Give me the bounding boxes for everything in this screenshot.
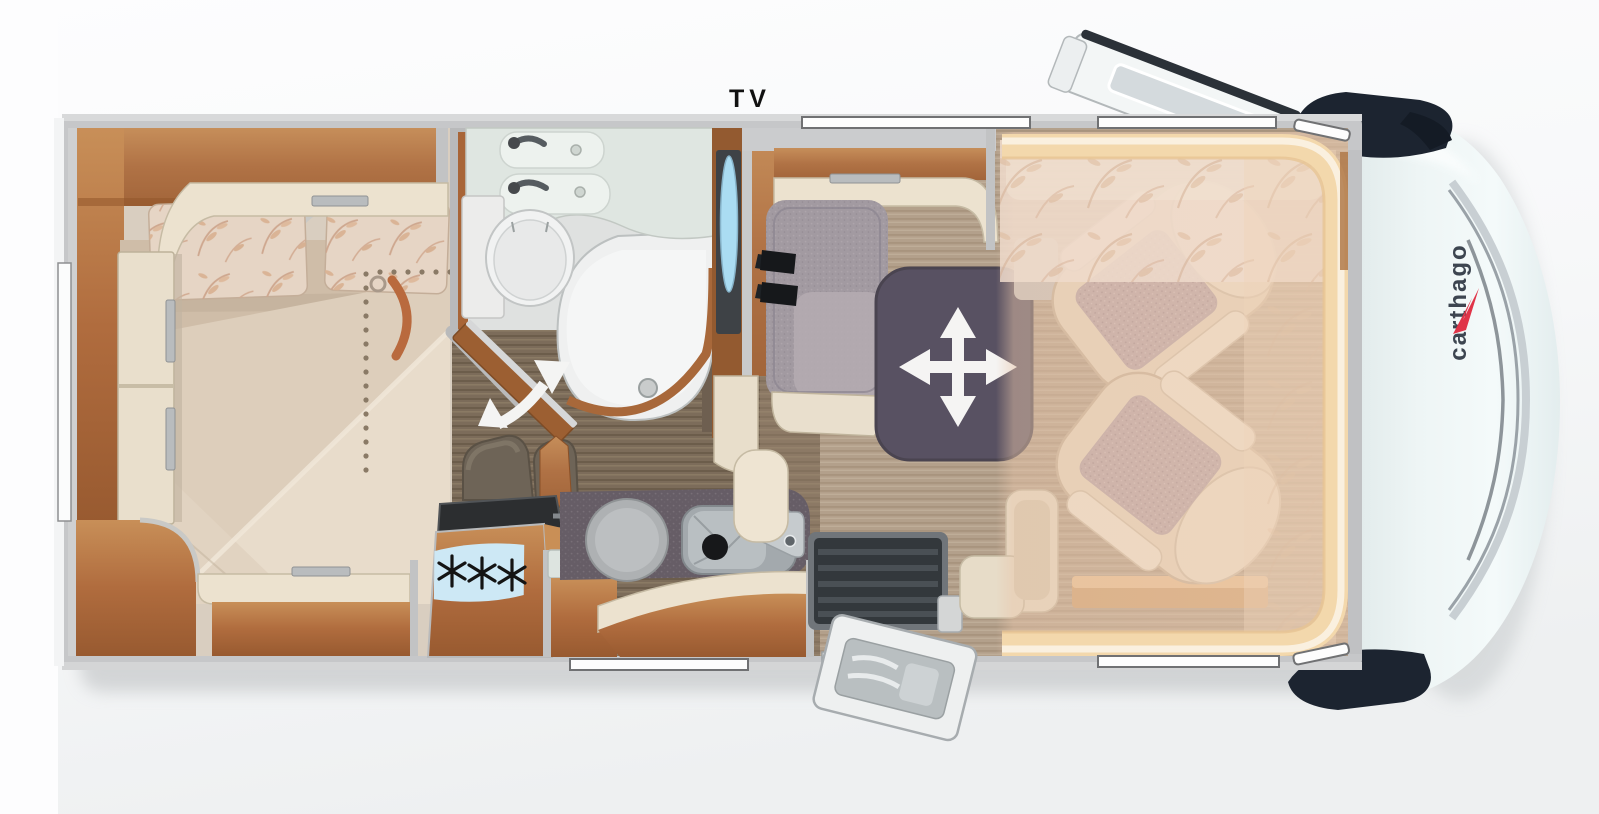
svg-text:carthago: carthago (1445, 243, 1472, 360)
svg-text:TV: TV (729, 85, 771, 113)
